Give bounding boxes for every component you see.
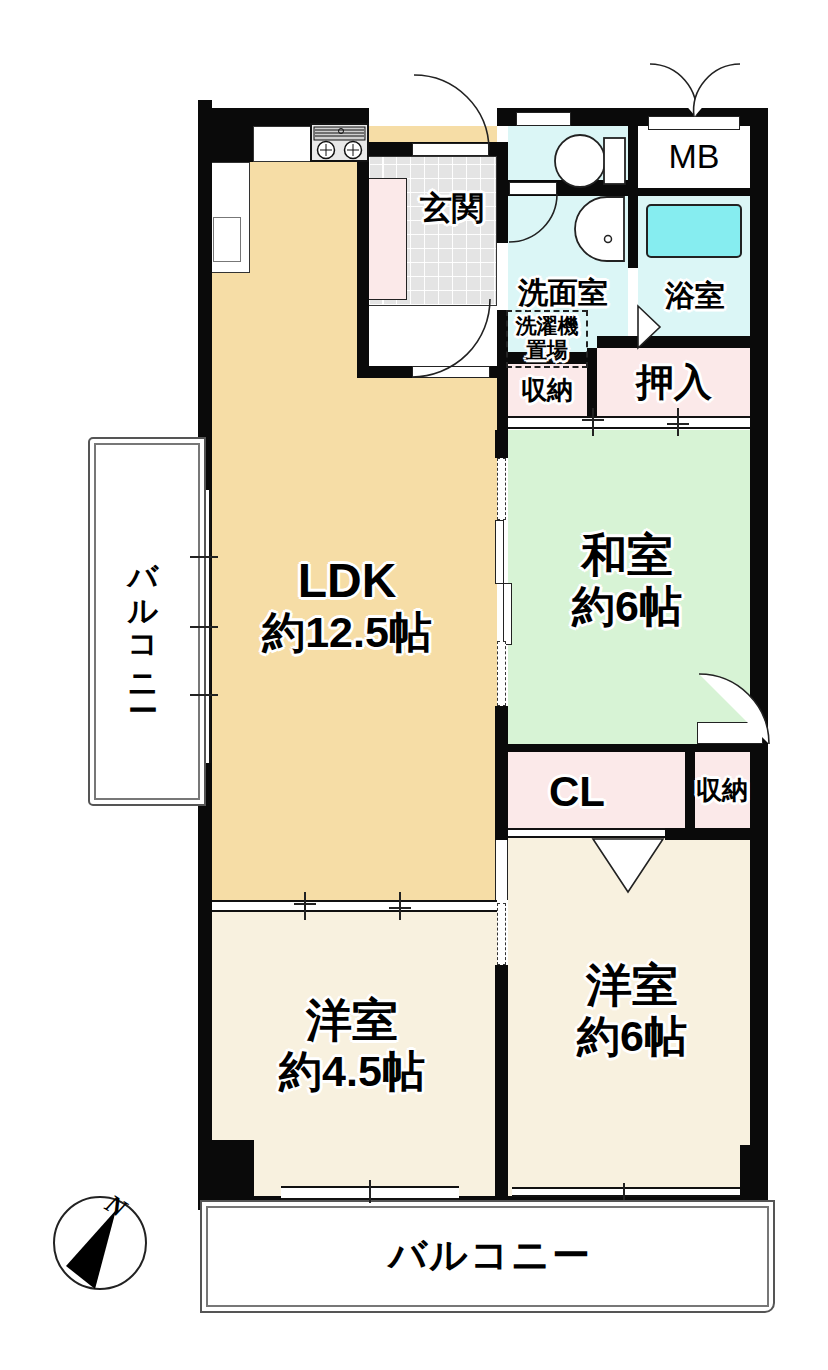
room-ldk-label: LDK 約12.5帖 [262, 554, 432, 656]
bath-folding-door-icon [638, 306, 660, 348]
room-washitsu-label: 和室 約6帖 [572, 530, 682, 630]
washitsu-closet-door-arc [699, 674, 769, 744]
room-youshitsu-small-label: 洋室 約4.5帖 [279, 995, 425, 1095]
entrance-door-arc [414, 75, 489, 150]
track-ticks [190, 408, 689, 1203]
mb-door-arc-right [694, 64, 740, 117]
balcony-bottom-label: バルコニー [388, 1234, 592, 1277]
laundry-space-label: 洗濯機 置場 [516, 314, 579, 361]
closet-shunou-upper-label: 収納 [521, 376, 573, 405]
hall-door-arc [412, 299, 490, 377]
cl-folding-door-icon [593, 839, 663, 892]
room-youshitsu-large-label: 洋室 約6帖 [577, 960, 687, 1060]
compass [54, 1197, 146, 1289]
closet-oshiire-label: 押入 [636, 361, 712, 404]
toilet-icon [555, 135, 625, 187]
floor-plan: LDK 約12.5帖 和室 約6帖 洋室 約4.5帖 洋室 約6帖 玄関 洗面室… [0, 0, 828, 1370]
balcony-left-label: バルコニー [126, 542, 160, 698]
room-mb-label: MB [669, 137, 720, 175]
room-senmenshitsu-label: 洗面室 [518, 276, 608, 310]
plan-symbols [0, 0, 828, 1370]
closet-shunou-lower-label: 収納 [696, 776, 748, 805]
mb-door-arc-left [650, 64, 696, 117]
stove-icon [311, 124, 368, 161]
room-yokushitsu-label: 浴室 [665, 279, 725, 313]
toilet-door-arc [509, 194, 557, 242]
sink-icon [575, 197, 624, 261]
room-genkan-label: 玄関 [420, 191, 484, 227]
closet-cl-label: CL [549, 768, 605, 815]
